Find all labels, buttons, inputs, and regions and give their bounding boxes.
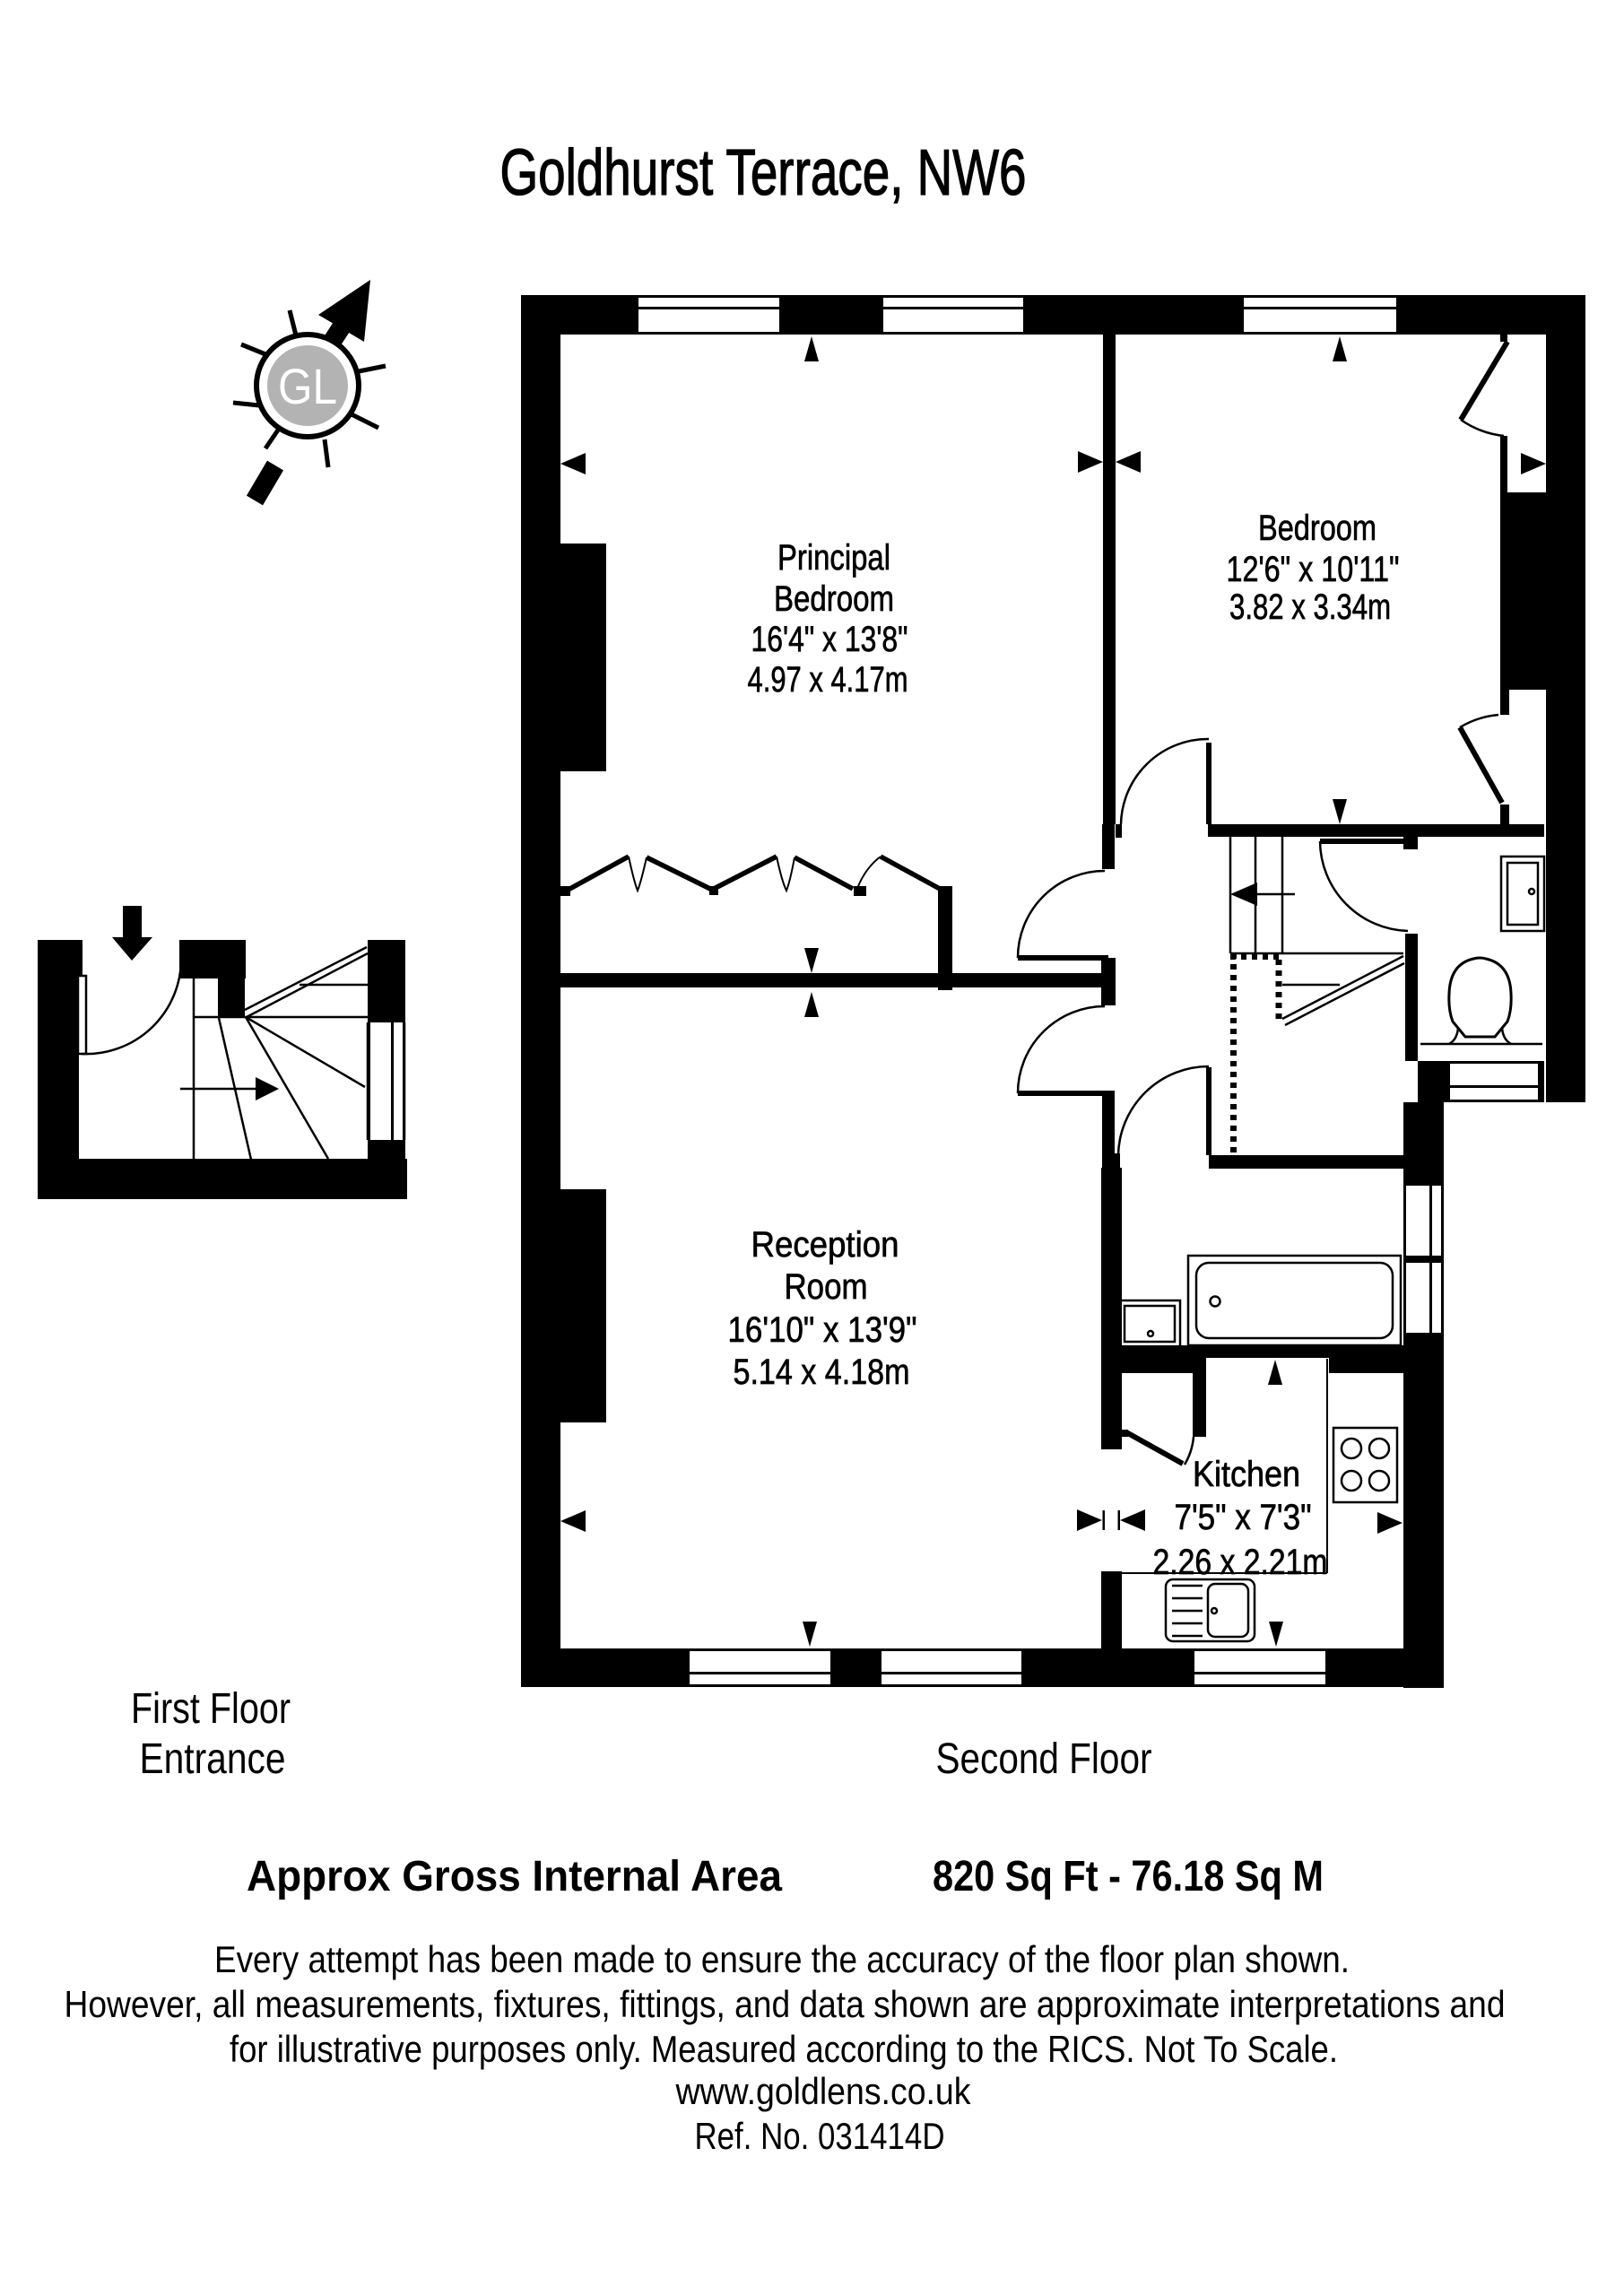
svg-text:First Floor: First Floor bbox=[131, 1685, 291, 1733]
svg-text:Kitchen: Kitchen bbox=[1193, 1455, 1300, 1494]
svg-text:Approx Gross Internal Area: Approx Gross Internal Area bbox=[247, 1853, 782, 1900]
svg-text:2.26 x 2.21m: 2.26 x 2.21m bbox=[1153, 1543, 1328, 1582]
svg-text:www.goldlens.co.uk: www.goldlens.co.uk bbox=[675, 2070, 972, 2112]
svg-text:GL: GL bbox=[278, 358, 337, 414]
svg-text:7'5" x 7'3": 7'5" x 7'3" bbox=[1175, 1498, 1312, 1537]
svg-text:16'10" x 13'9": 16'10" x 13'9" bbox=[728, 1310, 917, 1350]
svg-text:5.14 x 4.18m: 5.14 x 4.18m bbox=[734, 1352, 910, 1392]
svg-text:Room: Room bbox=[785, 1267, 868, 1307]
svg-text:820 Sq Ft - 76.18 Sq M: 820 Sq Ft - 76.18 Sq M bbox=[933, 1853, 1324, 1900]
svg-text:However, all measurements, fix: However, all measurements, fixtures, fit… bbox=[65, 1983, 1506, 2025]
svg-text:Reception: Reception bbox=[751, 1225, 899, 1265]
svg-text:Second Floor: Second Floor bbox=[936, 1735, 1152, 1783]
svg-text:4.97 x 4.17m: 4.97 x 4.17m bbox=[748, 660, 908, 700]
svg-text:Every attempt has been made to: Every attempt has been made to ensure th… bbox=[214, 1938, 1350, 1980]
svg-text:Entrance: Entrance bbox=[140, 1735, 286, 1783]
svg-text:Goldhurst Terrace, NW6: Goldhurst Terrace, NW6 bbox=[500, 137, 1027, 209]
svg-text:Bedroom: Bedroom bbox=[774, 579, 894, 619]
svg-text:12'6" x 10'11": 12'6" x 10'11" bbox=[1227, 550, 1400, 589]
svg-text:3.82 x 3.34m: 3.82 x 3.34m bbox=[1229, 587, 1391, 627]
svg-text:16'4" x 13'8": 16'4" x 13'8" bbox=[751, 620, 908, 659]
svg-text:Principal: Principal bbox=[777, 538, 890, 578]
svg-text:for illustrative purposes only: for illustrative purposes only. Measured… bbox=[230, 2028, 1338, 2070]
svg-text:Bedroom: Bedroom bbox=[1258, 509, 1376, 548]
svg-text:Ref. No. 031414D: Ref. No. 031414D bbox=[695, 2115, 945, 2157]
